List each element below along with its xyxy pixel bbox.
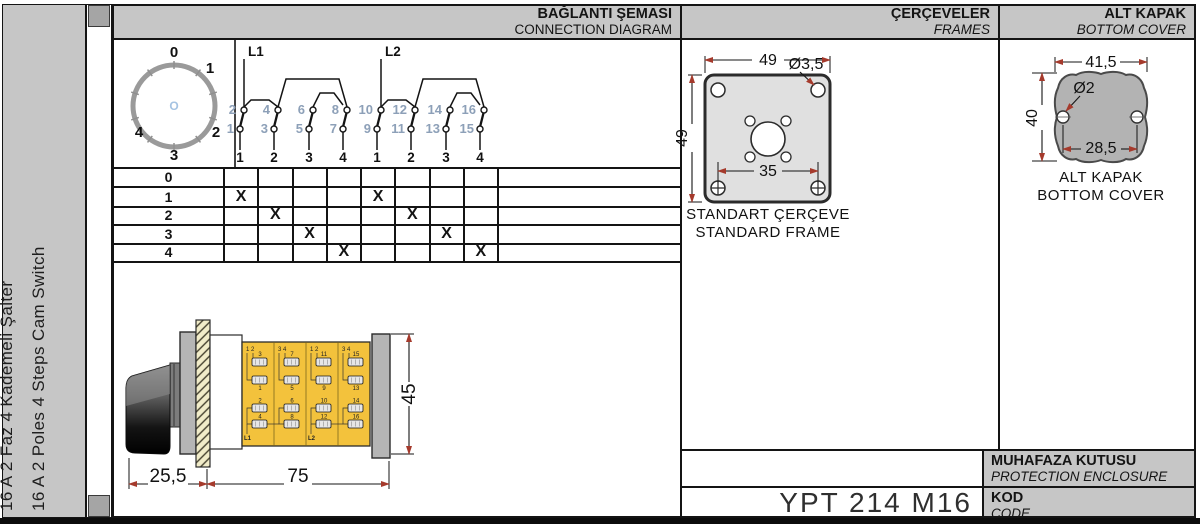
terminal-block-number: 11 <box>321 352 328 358</box>
bottom-cover-drawing: 41,5 40 Ø2 28,5 ALT KAPAK BOTTOM C <box>1000 40 1194 250</box>
terminal-number: 16 <box>462 102 476 117</box>
contact-closed-mark: X <box>396 206 430 226</box>
dial-pos-1: 1 <box>206 60 214 77</box>
contact-open-cell <box>225 206 259 226</box>
terminal-block-number: 10 <box>321 399 328 405</box>
position-label: 4 <box>114 243 225 263</box>
left-sidebar: 16 A 2 Faz 4 Kademeli Şalter 16 A 2 Pole… <box>2 4 86 518</box>
contact-open-cell <box>328 206 362 226</box>
dial-pos-2: 2 <box>212 124 220 141</box>
product-code: YPT 214 M16 <box>680 488 972 518</box>
contact-open-cell <box>328 188 362 208</box>
frame-caption-tr: STANDART ÇERÇEVE <box>686 206 850 223</box>
product-title-en: 16 A 2 Poles 4 Steps Cam Switch <box>29 246 49 511</box>
contact-open-cell <box>294 206 328 226</box>
svg-text:28,5: 28,5 <box>1085 140 1116 157</box>
shaft-hole <box>751 122 785 156</box>
binding-strip <box>86 4 112 518</box>
svg-text:25,5: 25,5 <box>150 466 187 487</box>
contact-open-cell <box>259 169 293 188</box>
terminal-number: 3 <box>261 121 268 136</box>
terminal-number: 13 <box>426 121 440 136</box>
table-row: 1XX <box>114 188 680 207</box>
dim-body-height: 45 <box>391 334 420 454</box>
contact-open-cell <box>328 169 362 188</box>
column-label: 2 <box>270 150 278 165</box>
frame-caption-en: STANDARD FRAME <box>695 224 840 241</box>
terminal-number: 2 <box>229 102 236 117</box>
dial-pos-0: 0 <box>170 44 178 61</box>
position-label: 0 <box>114 169 225 188</box>
svg-text:3 4: 3 4 <box>278 347 287 353</box>
dim-cover-height: 40 <box>1024 73 1057 161</box>
column-divider-2 <box>998 6 1000 449</box>
position-dial: 0 1 2 3 4 O <box>131 44 220 164</box>
terminal-number: 4 <box>263 102 271 117</box>
contact-closed-mark: X <box>294 225 328 245</box>
contact-open-cell <box>225 225 259 245</box>
table-filler <box>499 169 680 188</box>
position-label: 1 <box>114 188 225 208</box>
contact-open-cell <box>362 243 396 263</box>
contact-open-cell <box>465 169 499 188</box>
dial-pos-3: 3 <box>170 147 178 164</box>
code-label-cell: KOD CODE <box>982 488 1194 516</box>
contact-open-cell <box>396 188 430 208</box>
product-title-tr: 16 A 2 Faz 4 Kademeli Şalter <box>0 281 17 511</box>
switch-knob <box>126 363 182 454</box>
contact-open-cell <box>362 206 396 226</box>
dim-body-length: 75 <box>207 461 389 489</box>
svg-text:1 2: 1 2 <box>246 347 255 353</box>
table-filler <box>499 188 680 208</box>
code-label-tr: KOD <box>991 490 1188 506</box>
contact-open-cell <box>431 169 465 188</box>
terminal-number: 10 <box>359 102 373 117</box>
position-label: 3 <box>114 225 225 245</box>
end-plate <box>372 334 390 458</box>
column-label: 1 <box>236 150 244 165</box>
header-connection-en: CONNECTION DIAGRAM <box>114 22 672 37</box>
contact-open-cell <box>259 188 293 208</box>
main-sheet: BAĞLANTI ŞEMASI CONNECTION DIAGRAM ÇERÇE… <box>112 4 1196 518</box>
svg-text:1 2: 1 2 <box>310 347 319 353</box>
position-label: 2 <box>114 206 225 226</box>
contact-open-cell <box>328 225 362 245</box>
contact-open-cell <box>465 188 499 208</box>
column-label: 1 <box>373 150 381 165</box>
strip-marker-top <box>88 5 110 27</box>
header-bottom-cover: ALT KAPAK BOTTOM COVER <box>1000 6 1194 38</box>
contact-open-cell <box>294 243 328 263</box>
terminal-block-number: 12 <box>321 415 328 421</box>
terminal-block-number: 14 <box>353 399 360 405</box>
terminal-number: 8 <box>332 102 339 117</box>
svg-text:35: 35 <box>759 163 777 180</box>
contact-closed-mark: X <box>328 243 362 263</box>
contact-open-cell <box>431 243 465 263</box>
cover-caption-en: BOTTOM COVER <box>1037 187 1164 204</box>
svg-text:41,5: 41,5 <box>1085 54 1116 71</box>
column-divider-1 <box>680 6 682 516</box>
enclosure-label-tr: MUHAFAZA KUTUSU <box>991 453 1188 469</box>
header-bottom-cover-en: BOTTOM COVER <box>1000 22 1186 37</box>
table-row: 3XX <box>114 225 680 244</box>
column-label: 3 <box>305 150 313 165</box>
connection-diagram: 0 1 2 3 4 O L1211432653874L2109112112141… <box>114 40 680 167</box>
contact-closed-mark: X <box>465 243 499 263</box>
terminal-number: 14 <box>428 102 443 117</box>
contact-open-cell <box>465 225 499 245</box>
svg-text:Ø3,5: Ø3,5 <box>789 56 824 73</box>
contact-open-cell <box>294 188 328 208</box>
column-label: 4 <box>476 150 484 165</box>
switch-group-L1: L1211432653874 <box>227 44 350 165</box>
contact-closed-mark: X <box>362 188 396 208</box>
feed-label: L1 <box>248 44 264 59</box>
contact-open-cell <box>362 225 396 245</box>
svg-text:49: 49 <box>759 52 777 69</box>
terminal-number: 11 <box>391 121 405 136</box>
terminal-number: 1 <box>227 121 234 136</box>
table-filler <box>499 206 680 226</box>
code-label-en: CODE <box>991 506 1188 522</box>
column-label: 3 <box>442 150 450 165</box>
top-header-band: BAĞLANTI ŞEMASI CONNECTION DIAGRAM ÇERÇE… <box>114 6 1194 40</box>
contact-open-cell <box>396 225 430 245</box>
module-feed-label: L1 <box>244 436 252 442</box>
contact-open-cell <box>396 169 430 188</box>
header-bottom-cover-tr: ALT KAPAK <box>1000 7 1186 22</box>
contact-open-cell <box>259 225 293 245</box>
enclosure-label-cell: MUHAFAZA KUTUSU PROTECTION ENCLOSURE <box>982 451 1194 486</box>
terminal-number: 6 <box>298 102 305 117</box>
header-frames-tr: ÇERÇEVELER <box>682 7 990 22</box>
side-view-drawing: 1 2L131243 475681 2L211910123 415131416 … <box>114 306 680 520</box>
strip-marker-bottom <box>88 495 110 517</box>
front-plate <box>180 332 196 454</box>
header-connection-diagram: BAĞLANTI ŞEMASI CONNECTION DIAGRAM <box>114 6 680 38</box>
contact-open-cell <box>225 243 259 263</box>
dial-center-mark: O <box>169 99 178 113</box>
table-row: 2XX <box>114 206 680 225</box>
header-frames: ÇERÇEVELER FRAMES <box>682 6 998 38</box>
feed-label: L2 <box>385 44 401 59</box>
terminal-number: 12 <box>393 102 407 117</box>
table-filler <box>499 225 680 245</box>
terminal-number: 15 <box>460 121 474 136</box>
terminal-number: 9 <box>364 121 371 136</box>
contact-open-cell <box>362 169 396 188</box>
terminal-block-number: 13 <box>353 386 360 392</box>
switch-groups: L1211432653874L21091121121413316154 <box>227 44 487 165</box>
table-row: 0 <box>114 169 680 188</box>
contact-open-cell <box>431 206 465 226</box>
svg-text:40: 40 <box>1024 109 1041 127</box>
dim-knob-depth: 25,5 <box>129 458 207 489</box>
datasheet-page: 16 A 2 Faz 4 Kademeli Şalter 16 A 2 Pole… <box>0 0 1200 524</box>
dial-pos-4: 4 <box>135 124 144 141</box>
svg-text:49: 49 <box>674 129 691 147</box>
dim-cover-width: 41,5 <box>1055 54 1147 72</box>
terminal-number: 7 <box>330 121 337 136</box>
column-label: 2 <box>407 150 415 165</box>
contact-open-cell <box>465 206 499 226</box>
contact-open-cell <box>225 169 259 188</box>
switch-group-L2: L21091121121413316154 <box>359 44 487 165</box>
header-frames-en: FRAMES <box>682 22 990 37</box>
svg-text:Ø2: Ø2 <box>1073 80 1094 97</box>
column-label: 4 <box>339 150 347 165</box>
contact-open-cell <box>259 243 293 263</box>
contact-closed-mark: X <box>259 206 293 226</box>
table-row: 4XX <box>114 243 680 262</box>
svg-text:45: 45 <box>399 383 420 404</box>
header-connection-tr: BAĞLANTI ŞEMASI <box>114 7 672 22</box>
contact-open-cell <box>431 188 465 208</box>
terminal-block-number: 15 <box>353 352 360 358</box>
contact-closed-mark: X <box>225 188 259 208</box>
svg-text:3 4: 3 4 <box>342 347 351 353</box>
cover-caption-tr: ALT KAPAK <box>1059 169 1143 186</box>
terminal-block-number: 16 <box>353 415 360 421</box>
terminal-number: 5 <box>296 121 303 136</box>
contact-open-cell <box>396 243 430 263</box>
table-filler <box>499 243 680 263</box>
panel-hatch <box>196 320 210 467</box>
svg-text:75: 75 <box>287 466 308 487</box>
shaft-housing <box>210 335 242 449</box>
enclosure-label-en: PROTECTION ENCLOSURE <box>991 469 1188 485</box>
contact-closed-mark: X <box>431 225 465 245</box>
module-feed-label: L2 <box>308 436 316 442</box>
standard-frame-drawing: 49 49 Ø3,5 35 STANDART ÇERÇEVE STA <box>680 40 1000 250</box>
position-table: 01XX2XX3XX4XX <box>114 167 680 262</box>
contact-open-cell <box>294 169 328 188</box>
